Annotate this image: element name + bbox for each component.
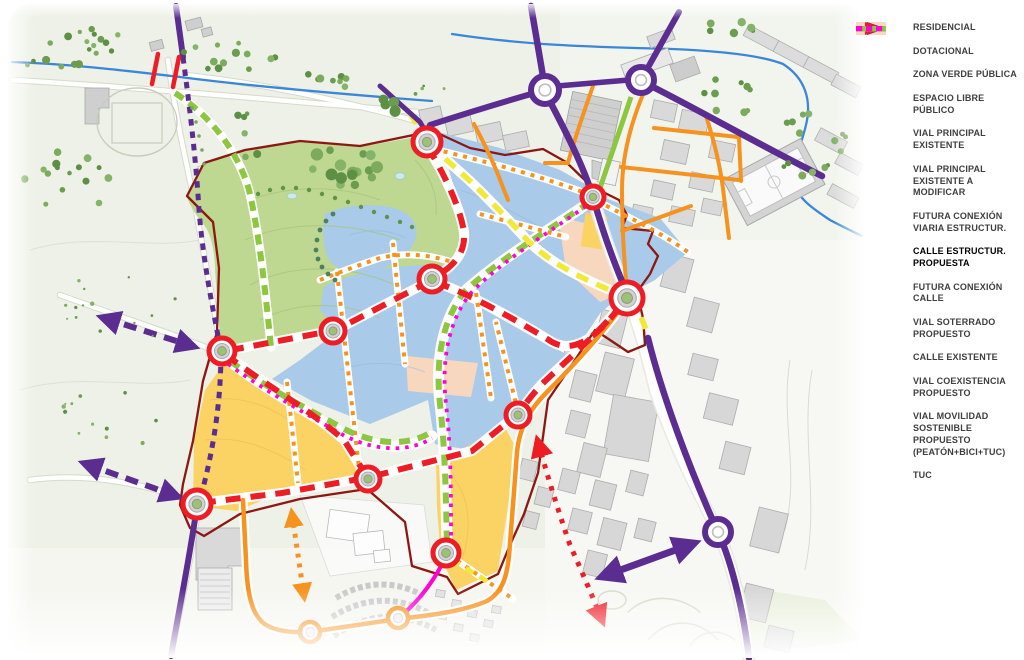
legend-symbol-calle-estructur-propuesta [870, 246, 902, 247]
legend-symbol-vial-principal-existente [870, 128, 902, 129]
legend-label: CALLE EXISTENTE [913, 352, 998, 364]
roundabout-structural [209, 338, 235, 364]
legend-label: FUTURA CONEXIÓN VIARIA ESTRUCTUR. [913, 211, 1020, 234]
roundabout-existing-principal [628, 67, 654, 93]
legend-label: VIAL PRINCIPAL EXISTENTE A MODIFICAR [913, 164, 1020, 199]
legend-item-futura-conexion-viaria-estructur: FUTURA CONEXIÓN VIARIA ESTRUCTUR. [856, 211, 1020, 234]
legend-symbol-tuc [870, 470, 902, 471]
legend-label: VIAL MOVILIDAD SOSTENIBLE PROPUESTO (PEA… [913, 411, 1020, 458]
legend-item-zona-verde-publica: ZONA VERDE PÚBLICA [856, 69, 1020, 81]
legend-symbol-dotacional [870, 46, 902, 47]
roundabout-structural [413, 128, 441, 156]
legend-symbol-zona-verde-publica [870, 69, 902, 70]
roundabout-existing-principal [705, 519, 731, 545]
legend-label: FUTURA CONEXIÓN CALLE [913, 282, 1020, 305]
roundabout-structural [611, 282, 643, 314]
legend-label: VIAL PRINCIPAL EXISTENTE [913, 128, 1020, 151]
roundabout-structural [433, 540, 459, 566]
legend-symbol-vial-soterrado-propuesto [870, 317, 902, 318]
roundabout-structural [356, 467, 380, 491]
legend-item-vial-movilidad-sostenible: VIAL MOVILIDAD SOSTENIBLE PROPUESTO (PEA… [856, 411, 1020, 458]
roundabout-structural [183, 490, 211, 518]
legend-item-vial-principal-existente: VIAL PRINCIPAL EXISTENTE [856, 128, 1020, 151]
legend-item-vial-principal-existente-a-modificar: VIAL PRINCIPAL EXISTENTE A MODIFICAR [856, 164, 1020, 199]
legend-item-dotacional: DOTACIONAL [856, 46, 1020, 58]
legend: RESIDENCIALDOTACIONALZONA VERDE PÚBLICAE… [856, 22, 1020, 482]
legend-symbol-calle-existente [870, 352, 902, 353]
legend-item-tuc: TUC [856, 470, 1020, 482]
legend-label: DOTACIONAL [913, 46, 974, 58]
legend-item-vial-soterrado-propuesto: VIAL SOTERRADO PROPUESTO [856, 317, 1020, 340]
figure-urban-plan: RESIDENCIALDOTACIONALZONA VERDE PÚBLICAE… [0, 0, 1024, 660]
roundabout-structural [321, 319, 345, 343]
legend-item-espacio-libre-publico: ESPACIO LIBRE PÚBLICO [856, 93, 1020, 116]
legend-symbol-vial-movilidad-sostenible [870, 411, 902, 412]
legend-label: CALLE ESTRUCTUR. PROPUESTA [913, 246, 1020, 269]
roundabout-structural [506, 403, 530, 427]
legend-label: ZONA VERDE PÚBLICA [913, 69, 1017, 81]
legend-label: TUC [913, 470, 932, 482]
legend-symbol-espacio-libre-publico [870, 93, 902, 94]
legend-label: ESPACIO LIBRE PÚBLICO [913, 93, 1020, 116]
roundabout-structural [419, 266, 445, 292]
legend-label: VIAL SOTERRADO PROPUESTO [913, 317, 1020, 340]
legend-item-vial-coexistencia-propuesto: VIAL COEXISTENCIA PROPUESTO [856, 376, 1020, 399]
legend-symbol-vial-coexistencia-propuesto [870, 376, 902, 377]
legend-label: RESIDENCIAL [913, 22, 976, 34]
legend-item-calle-estructur-propuesta: CALLE ESTRUCTUR. PROPUESTA [856, 246, 1020, 269]
legend-symbol-futura-conexion-viaria-estructur [870, 211, 902, 212]
roundabout-structural [582, 186, 604, 208]
legend-symbol-futura-conexion-calle [870, 282, 902, 283]
legend-item-calle-existente: CALLE EXISTENTE [856, 352, 1020, 364]
legend-item-futura-conexion-calle: FUTURA CONEXIÓN CALLE [856, 282, 1020, 305]
legend-symbol-vial-principal-existente-a-modificar [870, 164, 902, 165]
roundabout-existing-principal [531, 76, 559, 104]
legend-label: VIAL COEXISTENCIA PROPUESTO [913, 376, 1020, 399]
